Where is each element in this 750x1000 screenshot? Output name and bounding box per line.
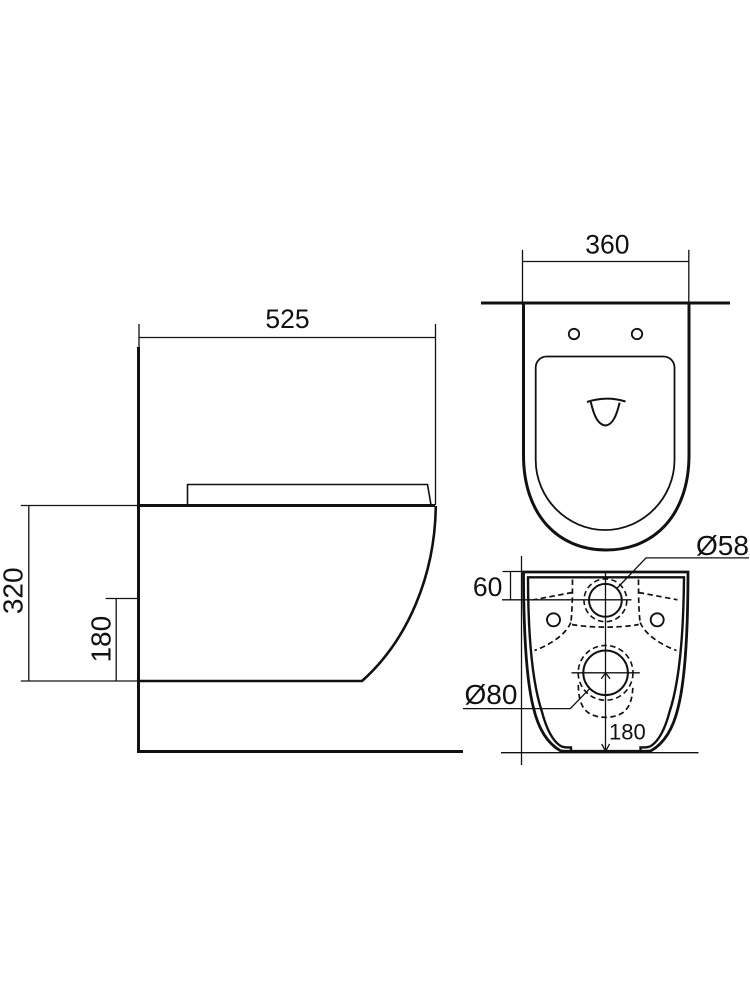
- svg-text:525: 525: [265, 304, 309, 334]
- svg-text:Ø58: Ø58: [696, 530, 749, 561]
- svg-text:180: 180: [609, 720, 646, 745]
- svg-text:360: 360: [585, 230, 629, 260]
- svg-text:180: 180: [85, 616, 116, 663]
- svg-text:Ø80: Ø80: [465, 679, 518, 710]
- svg-text:60: 60: [473, 572, 502, 602]
- svg-text:320: 320: [0, 567, 28, 614]
